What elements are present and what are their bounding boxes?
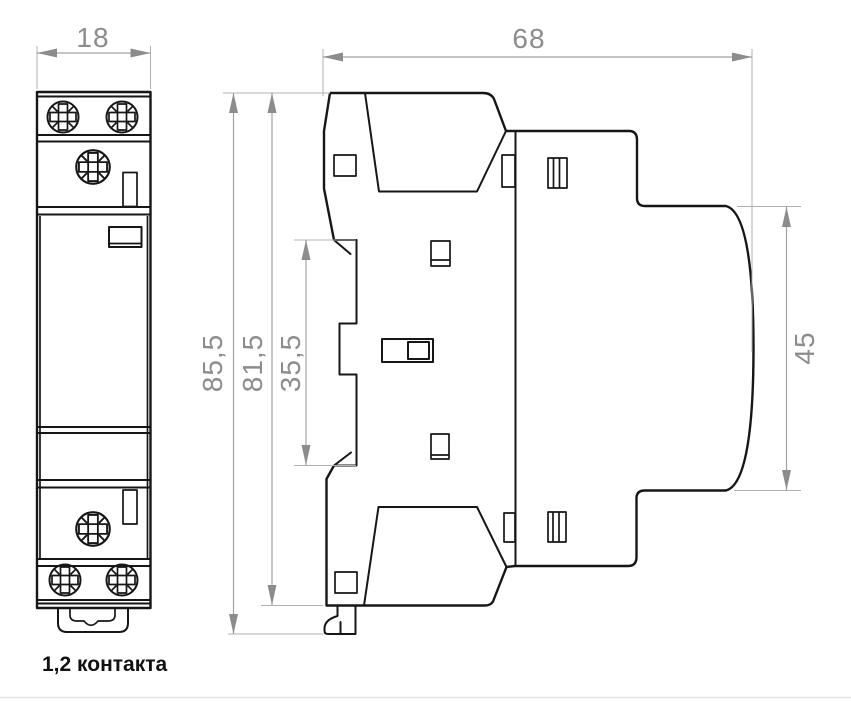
din-clip-front <box>58 608 128 632</box>
drawing-caption: 1,2 контакта <box>42 653 168 676</box>
front-view <box>37 92 151 632</box>
front-inner-walls <box>40 216 148 559</box>
side-square-upper <box>334 155 356 176</box>
divider-tab-upper <box>502 155 515 187</box>
screw-terminal <box>107 102 138 133</box>
screw-terminal <box>48 102 79 133</box>
dimension-label-din-recess: 35,5 <box>275 334 306 393</box>
screw-terminal <box>107 565 138 596</box>
din-clip-side <box>325 606 356 635</box>
dimension-label-height-body: 81,5 <box>237 334 268 393</box>
dimension-din-recess: 35,5 <box>275 240 356 466</box>
bottom-terminal-cover <box>364 507 507 606</box>
front-label-window <box>109 227 142 247</box>
dimension-label-height-overall: 85,5 <box>197 334 228 393</box>
side-outline <box>324 93 754 606</box>
side-slot-upper <box>431 241 450 266</box>
side-square-lower <box>335 572 357 593</box>
front-slot-upper <box>123 173 137 207</box>
side-view <box>324 93 754 634</box>
vent-slot-lower <box>548 512 566 542</box>
dimension-label-front-face: 45 <box>789 331 820 364</box>
divider-tab-lower <box>504 513 515 542</box>
dimension-side-depth: 68 <box>323 23 752 352</box>
dimension-label-front-width: 18 <box>76 22 109 53</box>
front-body-outline <box>37 92 151 608</box>
vent-slot-upper <box>548 158 567 188</box>
technical-drawing-canvas: 18 68 85,5 81,5 <box>0 0 851 701</box>
screw-terminal <box>76 512 109 545</box>
dimension-label-side-depth: 68 <box>512 23 545 54</box>
side-slot-lower <box>431 434 449 459</box>
top-terminal-cover <box>365 93 506 192</box>
din-recess-profile <box>334 240 357 466</box>
contactor-dimension-drawing: 18 68 85,5 81,5 <box>0 0 851 701</box>
screw-terminal <box>76 150 109 183</box>
dimension-front-width: 18 <box>37 22 151 89</box>
screw-terminal <box>50 565 81 596</box>
front-slot-lower <box>123 490 137 524</box>
side-latch-window <box>382 339 433 362</box>
dimensions: 18 68 85,5 81,5 <box>37 22 820 634</box>
